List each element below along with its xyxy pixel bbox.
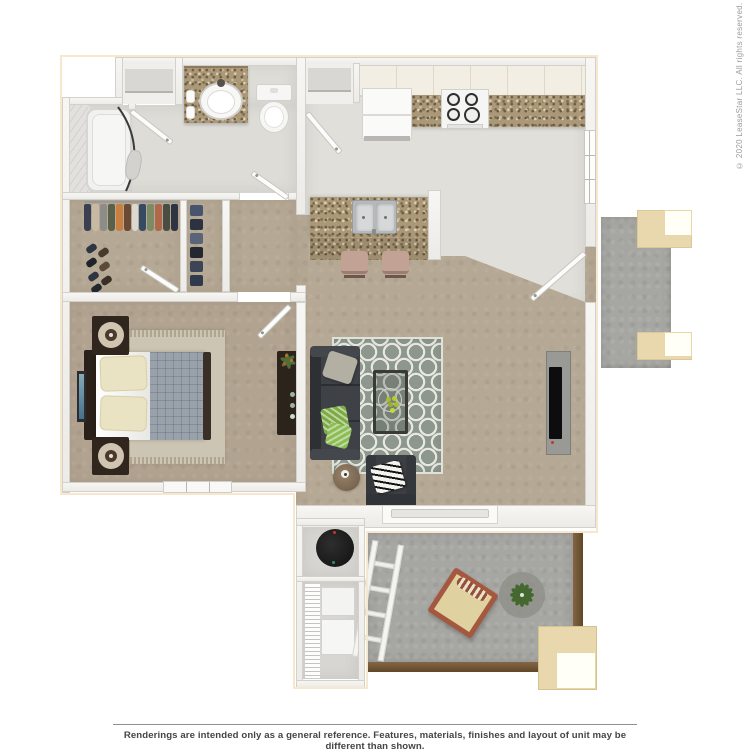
wall-walkin-right xyxy=(180,200,187,292)
stair-step xyxy=(370,585,391,593)
sofa-armrest-bottom xyxy=(310,449,360,460)
closet-rod xyxy=(84,201,178,203)
window-mullion xyxy=(589,131,590,203)
pantry-shelf xyxy=(308,68,351,92)
water-heater-valve-green xyxy=(332,561,335,564)
stove-burner xyxy=(447,108,460,121)
wall-alcove1-right xyxy=(175,57,183,105)
wall-linen-right xyxy=(222,200,230,292)
linen-stack xyxy=(190,205,203,216)
bed-duvet xyxy=(150,352,204,440)
water-heater xyxy=(316,529,354,567)
dresser-knob xyxy=(290,414,295,419)
nightstand-bottom-knob xyxy=(109,454,113,458)
stove-control-panel xyxy=(447,124,483,129)
plan-outline-left xyxy=(60,55,62,495)
stove-burner xyxy=(464,107,480,123)
wall-living-right xyxy=(585,302,596,528)
bedroom-window xyxy=(163,481,232,493)
plan-outline-step xyxy=(60,493,295,495)
dresser-knob xyxy=(290,403,295,408)
wall-closets-left xyxy=(296,518,303,688)
wall-bath-kitchen xyxy=(296,57,306,215)
wall-closets-top xyxy=(296,518,365,526)
apple xyxy=(390,408,395,413)
kitchen-counter xyxy=(412,95,585,127)
patio-plant xyxy=(510,583,534,607)
toilet-seat xyxy=(264,106,284,128)
washer xyxy=(321,587,355,616)
hallway-floor xyxy=(230,200,296,292)
linen-stack xyxy=(190,275,203,286)
wall-alcove2-right xyxy=(353,63,360,103)
window-mullion xyxy=(585,155,595,156)
copyright-text: © 2020 LeaseStar LLC. All rights reserve… xyxy=(735,10,744,170)
disclaimer-text: Renderings are intended only as a genera… xyxy=(113,724,637,750)
stair-step xyxy=(374,561,395,569)
plan-outline-top xyxy=(60,55,598,57)
sink-faucet xyxy=(372,229,376,235)
kitchen-window xyxy=(584,130,596,204)
tv-screen xyxy=(549,367,562,439)
stair-step xyxy=(365,610,386,618)
dresser-knob xyxy=(290,392,295,397)
sofa-cushion-divider xyxy=(321,384,360,386)
apple xyxy=(394,402,399,407)
bar-stool xyxy=(341,251,368,274)
linen-stack xyxy=(190,247,203,258)
plan-outline-mid-vertical xyxy=(366,531,368,689)
bedroom-rug-fringe-top xyxy=(130,330,225,337)
balcony-planter-top xyxy=(664,210,692,236)
dryer xyxy=(321,619,355,655)
side-table-cup-center xyxy=(344,473,347,476)
wall-bedroom-right xyxy=(296,302,306,492)
refrigerator-vent xyxy=(364,136,410,141)
bathroom-faucet xyxy=(217,79,225,87)
patio-planter-box-top xyxy=(556,652,596,689)
vanity-towel xyxy=(186,90,195,103)
patio-sliding-door-rail xyxy=(391,509,489,518)
wall-bath-south-left xyxy=(62,192,240,200)
bar-stool-footrail xyxy=(344,275,365,278)
wall-bedroom-top-stub xyxy=(290,292,306,302)
plan-outline-left-lower xyxy=(293,493,295,689)
kitchen-island-front xyxy=(310,238,428,260)
toilet-flush-button xyxy=(270,88,278,93)
sink-drain xyxy=(384,216,387,219)
window-mullion xyxy=(186,482,187,492)
wall-bedroom-top xyxy=(62,292,238,302)
laundry-shelving xyxy=(305,584,320,678)
vanity-towel xyxy=(186,106,195,119)
linen-stack xyxy=(190,233,203,244)
bar-stool xyxy=(382,251,409,274)
bed-footboard xyxy=(203,352,211,440)
balcony-planter-top xyxy=(664,332,692,357)
stove-burner xyxy=(447,93,460,106)
bar-stool-footrail xyxy=(385,275,406,278)
wall-closets-divider xyxy=(296,576,365,582)
plan-outline-right xyxy=(596,55,598,533)
plant-flower xyxy=(283,362,286,365)
alcove-shelf xyxy=(125,69,173,93)
wall-closets-right xyxy=(358,518,365,688)
linen-stack xyxy=(190,261,203,272)
stove-burner xyxy=(465,93,478,106)
wall-art-canvas xyxy=(79,374,84,419)
window-mullion xyxy=(585,179,595,180)
bed-pillow-bottom xyxy=(99,395,147,432)
wall-island-end-panel xyxy=(428,190,441,260)
bathroom-sink-bowl xyxy=(207,90,235,114)
apple xyxy=(388,402,393,407)
plant-flower xyxy=(285,354,288,357)
bed-pillow-top xyxy=(99,355,147,392)
window-mullion xyxy=(209,482,210,492)
sink-drain xyxy=(362,216,365,219)
plan-outline-bottom xyxy=(293,687,368,689)
linen-stack xyxy=(190,219,203,230)
plan-outline-patio-top xyxy=(366,531,598,533)
wall-void-bottom xyxy=(62,97,123,105)
water-heater-valve-red xyxy=(333,531,336,534)
nightstand-top-knob xyxy=(109,333,113,337)
plant-center xyxy=(520,593,524,597)
tv-power-light xyxy=(551,441,554,444)
refrigerator-door-line xyxy=(362,114,412,116)
hanging-clothes xyxy=(84,204,178,231)
plant-flower xyxy=(290,359,293,362)
bedroom-rug-fringe-bottom xyxy=(130,457,225,464)
apple xyxy=(392,396,397,401)
floorplan-canvas: © 2020 LeaseStar LLC. All rights reserve… xyxy=(0,0,750,750)
